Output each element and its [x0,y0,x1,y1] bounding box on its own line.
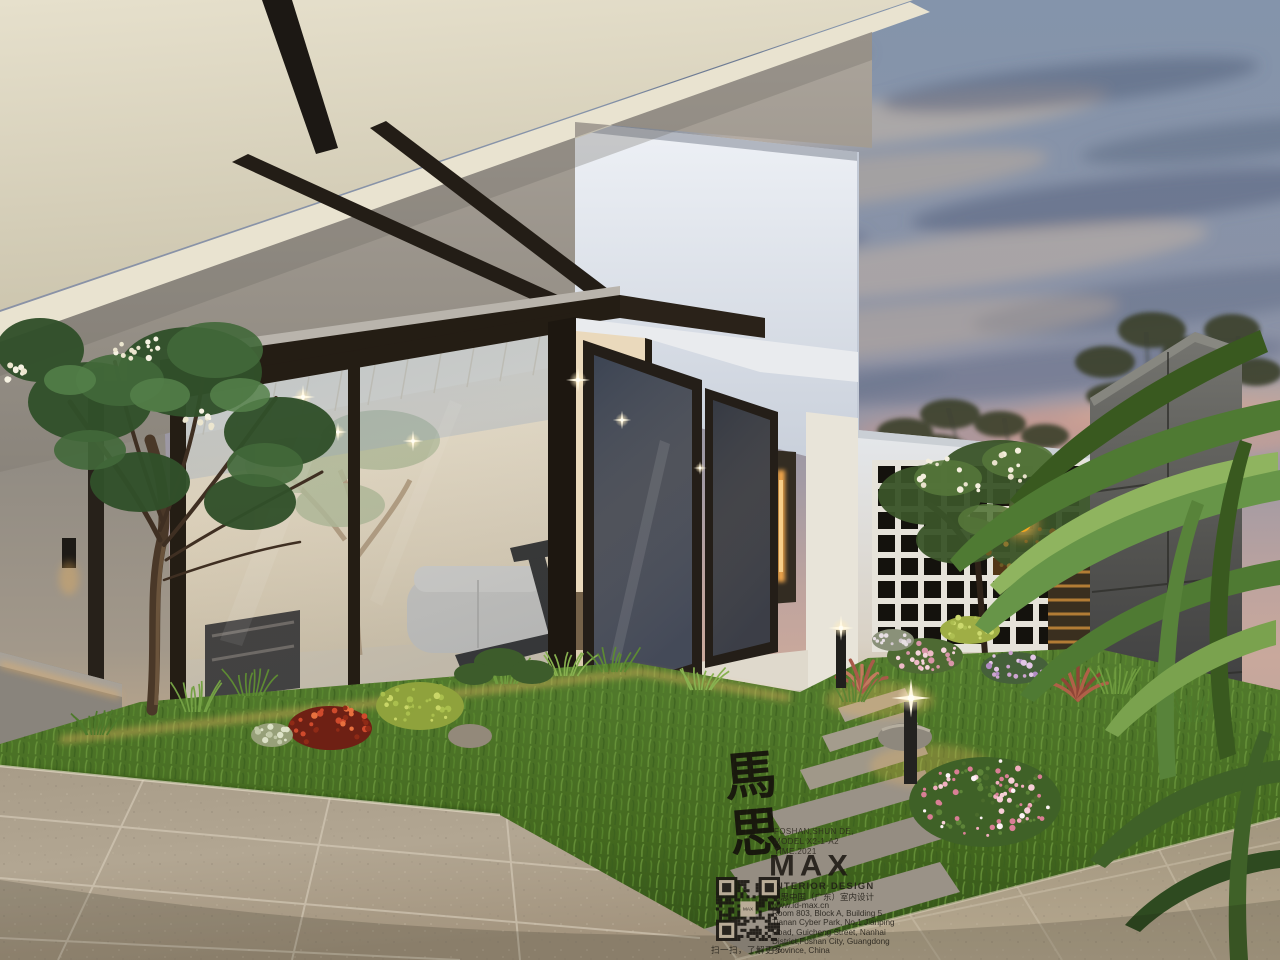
big-pink-flower-bush [909,757,1061,847]
architectural-render: 馬 思 FOSHAN,SHUN DE, MODEL X2-1-A2 TIME:2… [0,0,1280,960]
garden-stone [448,724,492,748]
open-glass-door-2 [705,388,778,668]
open-glass-door-1 [583,340,702,708]
scene-canvas [0,0,1280,960]
